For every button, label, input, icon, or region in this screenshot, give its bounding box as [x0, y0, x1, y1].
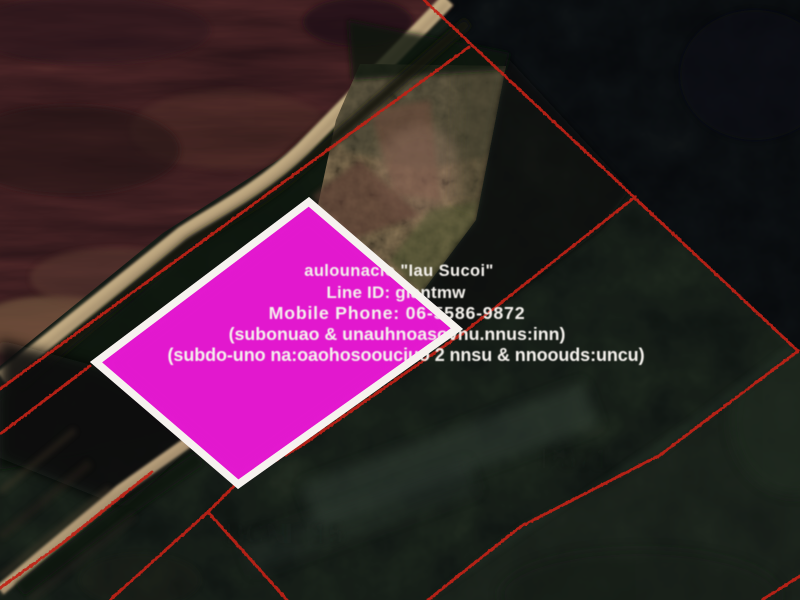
svg-text:Mobile Phone: 06-5586-9872: Mobile Phone: 06-5586-9872: [269, 303, 526, 323]
svg-text:BCNE 15: BCNE 15: [225, 518, 343, 549]
svg-text:(subonuao & unauhnoasovnu.nnus: (subonuao & unauhnoasovnu.nnus:inn): [229, 324, 566, 344]
svg-text:PS71: PS71: [540, 443, 609, 474]
svg-text:Line ID: giantmw: Line ID: giantmw: [326, 283, 466, 302]
